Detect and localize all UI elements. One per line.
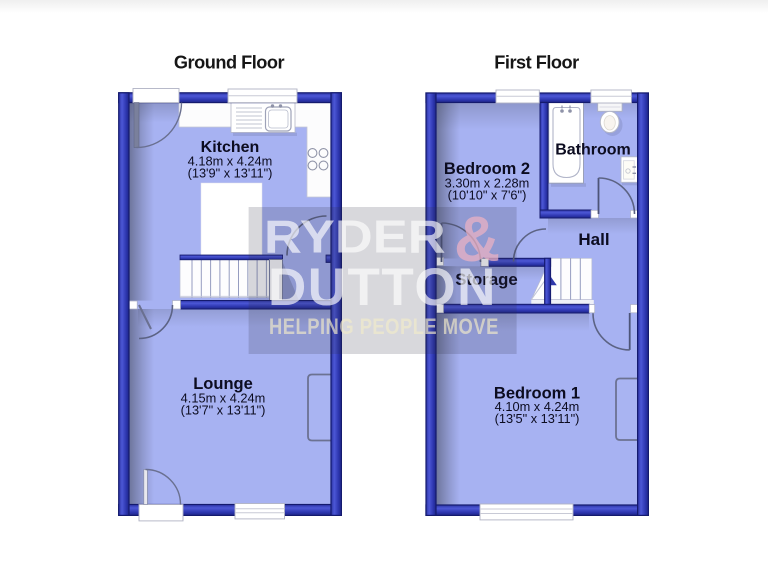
svg-text:DUTTON: DUTTON xyxy=(268,258,497,317)
svg-text:(13'7" x 13'11"): (13'7" x 13'11") xyxy=(181,403,266,418)
svg-text:HELPING PEOPLE MOVE: HELPING PEOPLE MOVE xyxy=(269,316,499,340)
svg-text:Bathroom: Bathroom xyxy=(555,142,631,159)
svg-text:First Floor: First Floor xyxy=(494,53,579,73)
svg-text:Hall: Hall xyxy=(578,230,609,249)
svg-text:(13'9" x 13'11"): (13'9" x 13'11") xyxy=(188,166,273,181)
svg-text:(13'5" x 13'11"): (13'5" x 13'11") xyxy=(495,411,580,426)
svg-text:(10'10" x 7'6"): (10'10" x 7'6") xyxy=(448,188,527,203)
svg-text:RYDER: RYDER xyxy=(264,211,446,262)
svg-text:Ground Floor: Ground Floor xyxy=(174,53,285,73)
